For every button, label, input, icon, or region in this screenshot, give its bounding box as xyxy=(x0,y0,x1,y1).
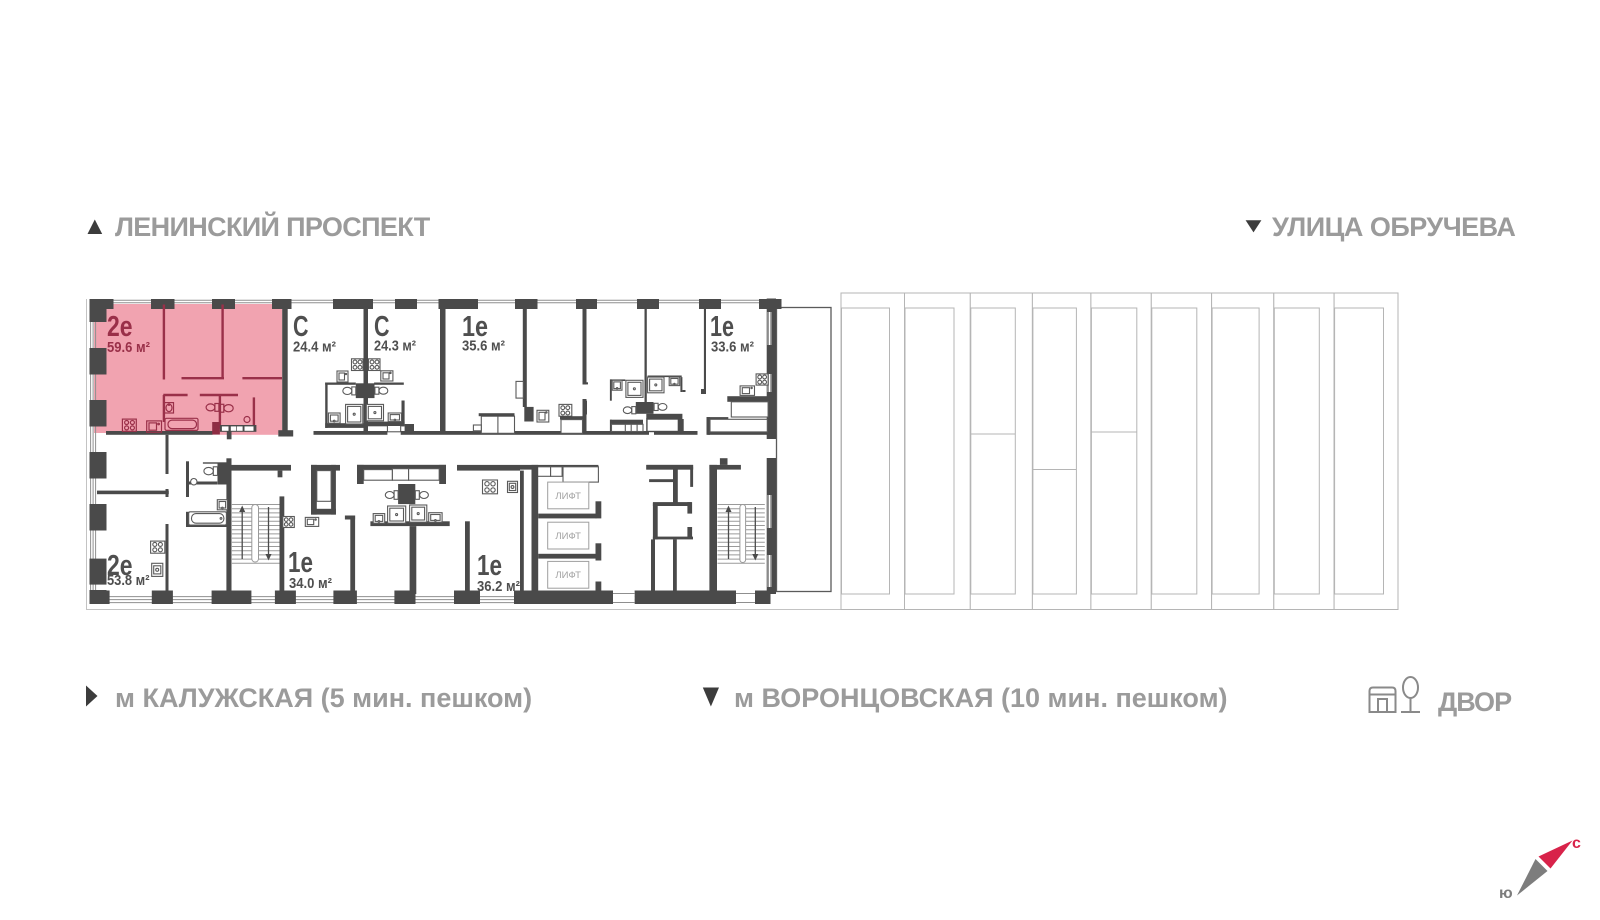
svg-text:33.6 м²: 33.6 м² xyxy=(711,340,754,356)
svg-text:35.6 м²: 35.6 м² xyxy=(462,339,505,355)
svg-text:36.2 м²: 36.2 м² xyxy=(477,579,520,595)
svg-text:24.4 м²: 24.4 м² xyxy=(293,340,336,356)
svg-text:24.3 м²: 24.3 м² xyxy=(374,339,416,355)
svg-text:59.6 м²: 59.6 м² xyxy=(107,340,150,356)
svg-text:ЛИФТ: ЛИФТ xyxy=(555,531,581,542)
svg-text:ДВОР: ДВОР xyxy=(1438,687,1512,717)
svg-text:1е: 1е xyxy=(288,547,313,579)
svg-text:с: с xyxy=(1572,835,1581,852)
svg-text:1е: 1е xyxy=(710,311,734,343)
svg-text:ЛИФТ: ЛИФТ xyxy=(555,570,581,581)
svg-text:м ВОРОНЦОВСКАЯ (10 мин. пешко: м ВОРОНЦОВСКАЯ (10 мин. пешком) xyxy=(734,683,1228,713)
svg-text:УЛИЦА ОБРУЧЕВА: УЛИЦА ОБРУЧЕВА xyxy=(1272,212,1515,242)
svg-text:1е: 1е xyxy=(477,550,502,582)
svg-text:С: С xyxy=(293,311,309,343)
svg-text:34.0 м²: 34.0 м² xyxy=(289,576,332,592)
svg-text:м КАЛУЖСКАЯ (5 мин. пешком): м КАЛУЖСКАЯ (5 мин. пешком) xyxy=(115,683,532,713)
svg-text:ю: ю xyxy=(1499,885,1513,902)
svg-text:ЛЕНИНСКИЙ ПРОСПЕКТ: ЛЕНИНСКИЙ ПРОСПЕКТ xyxy=(115,211,431,242)
svg-text:ЛИФТ: ЛИФТ xyxy=(555,491,581,502)
svg-text:53.8 м²: 53.8 м² xyxy=(107,573,150,589)
svg-text:2е: 2е xyxy=(107,311,133,343)
